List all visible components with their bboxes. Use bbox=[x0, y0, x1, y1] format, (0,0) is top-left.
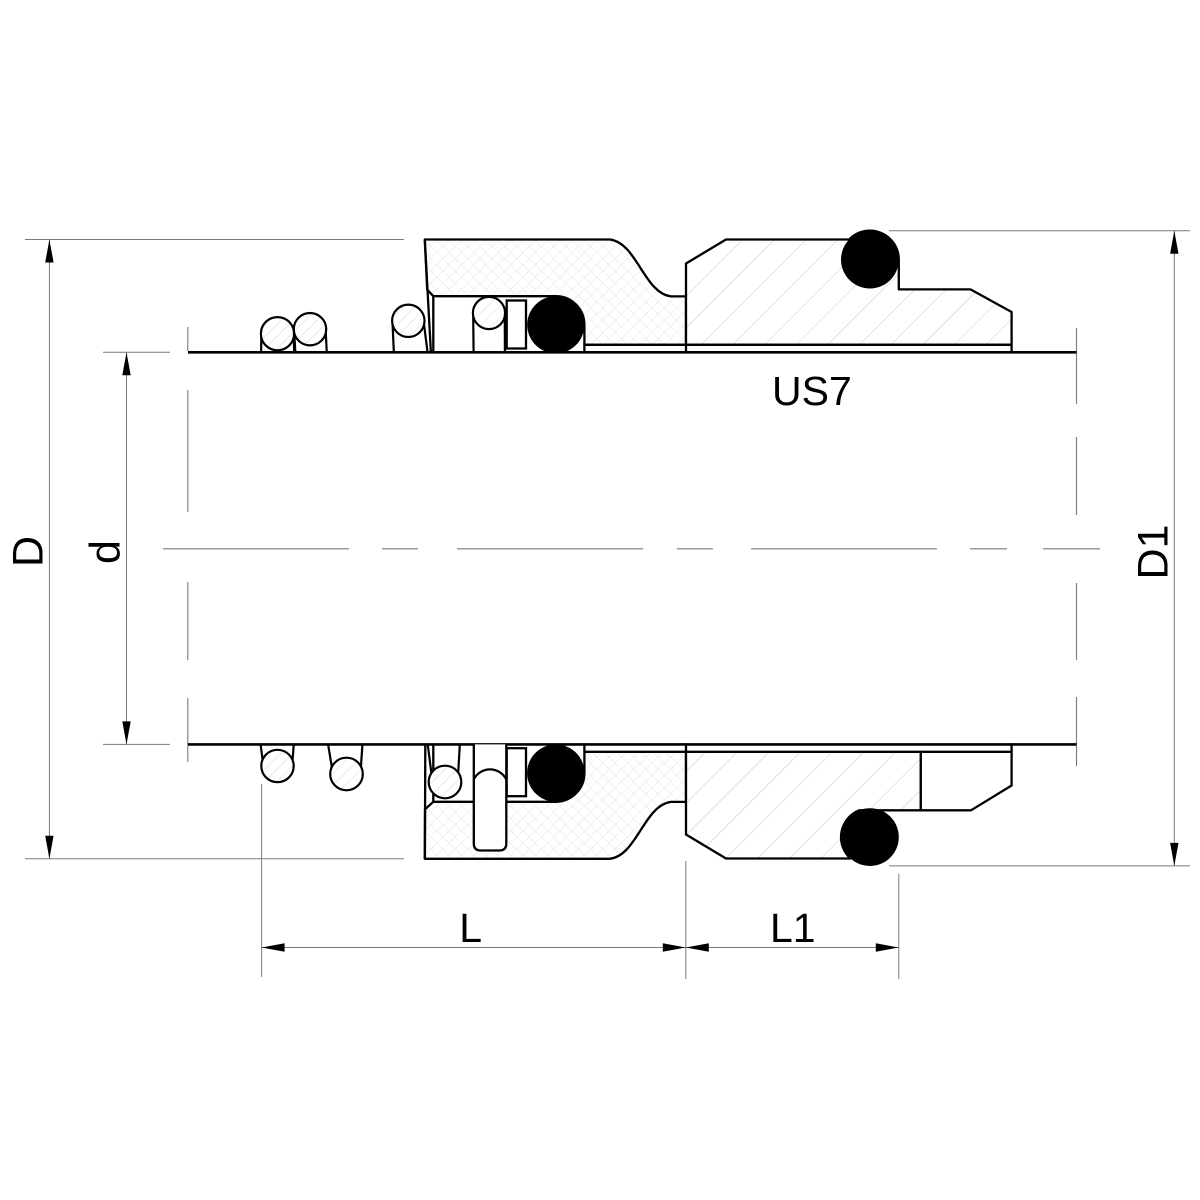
svg-text:US7: US7 bbox=[772, 368, 852, 414]
svg-text:D: D bbox=[4, 536, 52, 567]
svg-text:L: L bbox=[459, 905, 482, 951]
svg-text:L1: L1 bbox=[770, 905, 816, 951]
svg-text:D1: D1 bbox=[1129, 525, 1177, 580]
svg-text:d: d bbox=[82, 540, 130, 564]
